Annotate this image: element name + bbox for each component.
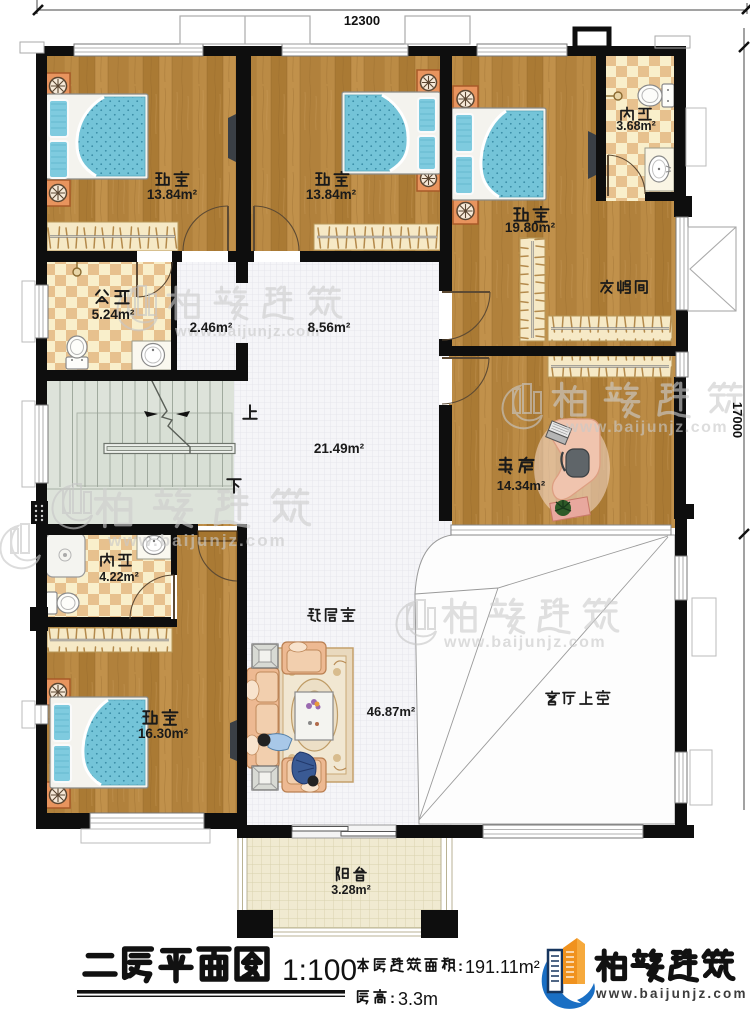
svg-text:3.3m: 3.3m — [398, 989, 438, 1009]
svg-text:www.baijunjz.com: www.baijunjz.com — [107, 531, 287, 550]
svg-text:5.24m²: 5.24m² — [92, 307, 135, 322]
svg-text:2.46m²: 2.46m² — [190, 320, 233, 335]
svg-text:21.49m²: 21.49m² — [314, 441, 365, 456]
svg-text:19.80m²: 19.80m² — [505, 220, 556, 235]
svg-text:3.68m²: 3.68m² — [616, 119, 656, 133]
svg-text:12300: 12300 — [344, 13, 380, 28]
svg-text:www.baijunjz.com: www.baijunjz.com — [443, 634, 606, 651]
svg-text:www.baijunjz.com: www.baijunjz.com — [595, 986, 748, 1001]
svg-text::: : — [458, 958, 463, 975]
svg-text:4.22m²: 4.22m² — [99, 570, 139, 584]
svg-text:14.34m²: 14.34m² — [497, 478, 546, 493]
svg-text:1:100: 1:100 — [282, 954, 357, 987]
svg-text:16.30m²: 16.30m² — [138, 726, 189, 741]
svg-text:13.84m²: 13.84m² — [147, 187, 198, 202]
svg-text:17000: 17000 — [730, 402, 745, 438]
svg-text:46.87m²: 46.87m² — [367, 704, 416, 719]
svg-text:8.56m²: 8.56m² — [308, 320, 351, 335]
svg-text::: : — [390, 990, 395, 1007]
svg-text:191.11m²: 191.11m² — [465, 957, 540, 977]
svg-text:www.baijunjz.com: www.baijunjz.com — [565, 419, 728, 436]
svg-text:13.84m²: 13.84m² — [306, 187, 357, 202]
svg-text:3.28m²: 3.28m² — [331, 883, 371, 897]
